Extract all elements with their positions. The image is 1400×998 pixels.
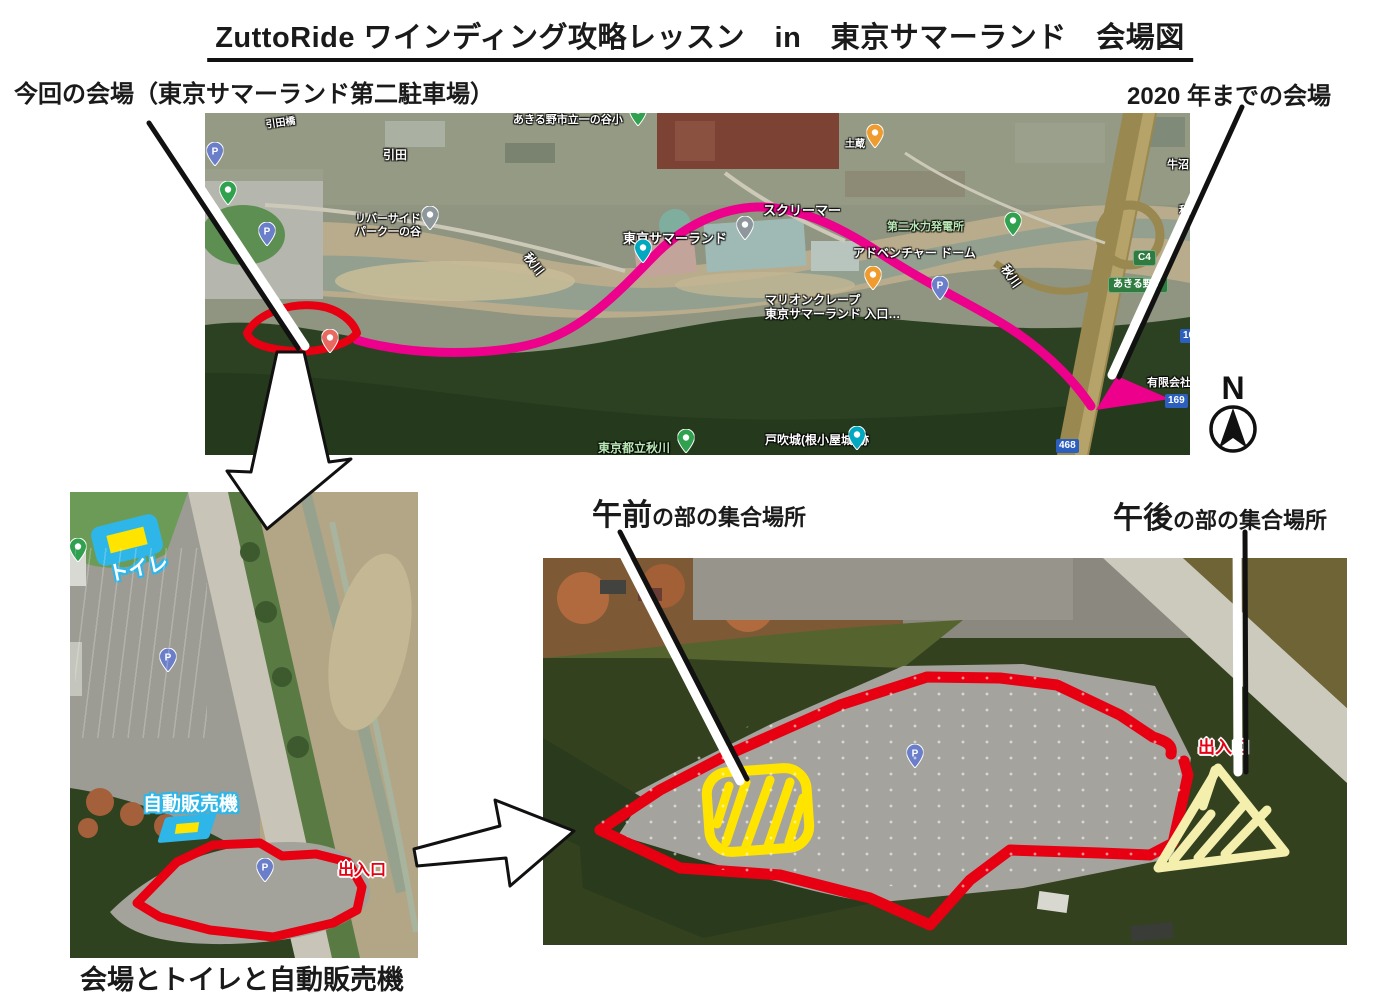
nature-pin-icon bbox=[678, 429, 695, 455]
parking-pin-icon: P bbox=[907, 744, 924, 773]
map-poi-label: 169 bbox=[1165, 394, 1188, 408]
map-poi-label: 牛沼 bbox=[1167, 159, 1189, 172]
overview-map-poi-layer: あきる野市立一の谷小引田橋引田リバーサイド パーク一の谷土蔵牛沼秋川スクリーマー… bbox=[205, 113, 1190, 455]
overview-satellite-map: あきる野市立一の谷小引田橋引田リバーサイド パーク一の谷土蔵牛沼秋川スクリーマー… bbox=[205, 113, 1190, 455]
map-poi-label: 引田橋 bbox=[265, 116, 296, 132]
north-compass: N bbox=[1211, 370, 1255, 451]
map-poi-label: マリオンクレープ 東京サマーランド 入口… bbox=[765, 294, 900, 322]
map-poi-label: 引田 bbox=[383, 149, 407, 163]
poi-salmon-pin-icon bbox=[322, 329, 339, 358]
parking-pin-icon: P bbox=[932, 276, 949, 305]
morning-label-rest: の部の集合場所 bbox=[652, 505, 806, 530]
svg-text:P: P bbox=[264, 227, 271, 238]
attraction-pin-icon bbox=[635, 239, 652, 268]
facilities-satellite-map: トイレ 自動販売機 出入口PP bbox=[70, 492, 418, 958]
map-poi-label: 有限会社 bbox=[1147, 377, 1190, 390]
food-pin-icon bbox=[865, 266, 882, 295]
poi-gray-pin-icon bbox=[737, 216, 754, 245]
page-title: ZuttoRide ワインディング攻略レッスン in 東京サマーランド 会場図 bbox=[207, 14, 1193, 62]
map-poi-label: 秋川 bbox=[998, 263, 1023, 291]
svg-text:P: P bbox=[165, 653, 172, 664]
svg-text:P: P bbox=[912, 749, 919, 760]
afternoon-label-rest: の部の集合場所 bbox=[1173, 508, 1327, 533]
parking-pin-icon: P bbox=[259, 222, 276, 251]
facilities-map-poi-layer: 出入口PP bbox=[70, 492, 418, 958]
compass-circle bbox=[1211, 407, 1255, 451]
map-poi-label: あきる野IC bbox=[1108, 277, 1168, 293]
map-poi-label: リバーサイド パーク一の谷 bbox=[355, 213, 421, 238]
svg-text:P: P bbox=[212, 147, 219, 158]
map-poi-label: あきる野市立一の谷小 bbox=[513, 114, 623, 127]
entrance-exit-label: 出入口 bbox=[338, 862, 386, 880]
map-poi-label: 東京都立秋川 bbox=[598, 442, 670, 455]
poi-gray-pin-icon bbox=[422, 206, 439, 235]
map-poi-label: 468 bbox=[1056, 439, 1079, 453]
svg-text:P: P bbox=[262, 863, 269, 874]
svg-text:P: P bbox=[937, 281, 944, 292]
afternoon-label-strong: 午後 bbox=[1113, 502, 1173, 535]
map-poi-label: 第二水力発電所 bbox=[887, 221, 964, 234]
nature-pin-icon bbox=[1005, 212, 1022, 241]
meeting-map-poi-layer: 出入口P bbox=[543, 558, 1347, 945]
compass-north-letter: N bbox=[1221, 370, 1244, 406]
map-poi-label: C4 bbox=[1133, 250, 1156, 266]
entrance-exit-label: 出入口 bbox=[1198, 738, 1249, 758]
morning-meeting-label: 午前の部の集合場所 bbox=[592, 490, 806, 534]
venue-map-flyer: ZuttoRide ワインディング攻略レッスン in 東京サマーランド 会場図 … bbox=[0, 0, 1400, 998]
nature-pin-icon bbox=[630, 113, 647, 131]
map-poi-label: アドベンチャー ドーム bbox=[853, 247, 976, 261]
nature-pin-icon bbox=[220, 181, 237, 210]
map-poi-label: 秋川 bbox=[1179, 205, 1190, 218]
parking-pin-icon: P bbox=[257, 858, 274, 887]
parking-pin-icon: P bbox=[160, 648, 177, 677]
map-poi-label: 秋川 bbox=[520, 251, 546, 278]
map-poi-label: 土蔵 bbox=[845, 139, 865, 151]
current-venue-label: 今回の会場（東京サマーランド第二駐車場） bbox=[14, 74, 494, 109]
map-poi-label: スクリーマー bbox=[763, 204, 841, 219]
compass-needle-icon bbox=[1219, 408, 1247, 448]
afternoon-meeting-label: 午後の部の集合場所 bbox=[1113, 493, 1327, 537]
parking-pin-icon: P bbox=[207, 142, 224, 171]
old-venue-label: 2020 年までの会場 bbox=[1127, 76, 1331, 111]
poi-orange-pin-icon bbox=[867, 124, 884, 153]
attraction-pin-icon bbox=[849, 426, 866, 455]
bottom-caption: 会場とトイレと自動販売機 bbox=[80, 958, 404, 997]
meeting-satellite-map: 出入口P bbox=[543, 558, 1347, 945]
nature-pin-icon bbox=[70, 538, 87, 567]
morning-label-strong: 午前 bbox=[592, 499, 652, 532]
map-poi-label: 169 bbox=[1180, 329, 1190, 343]
